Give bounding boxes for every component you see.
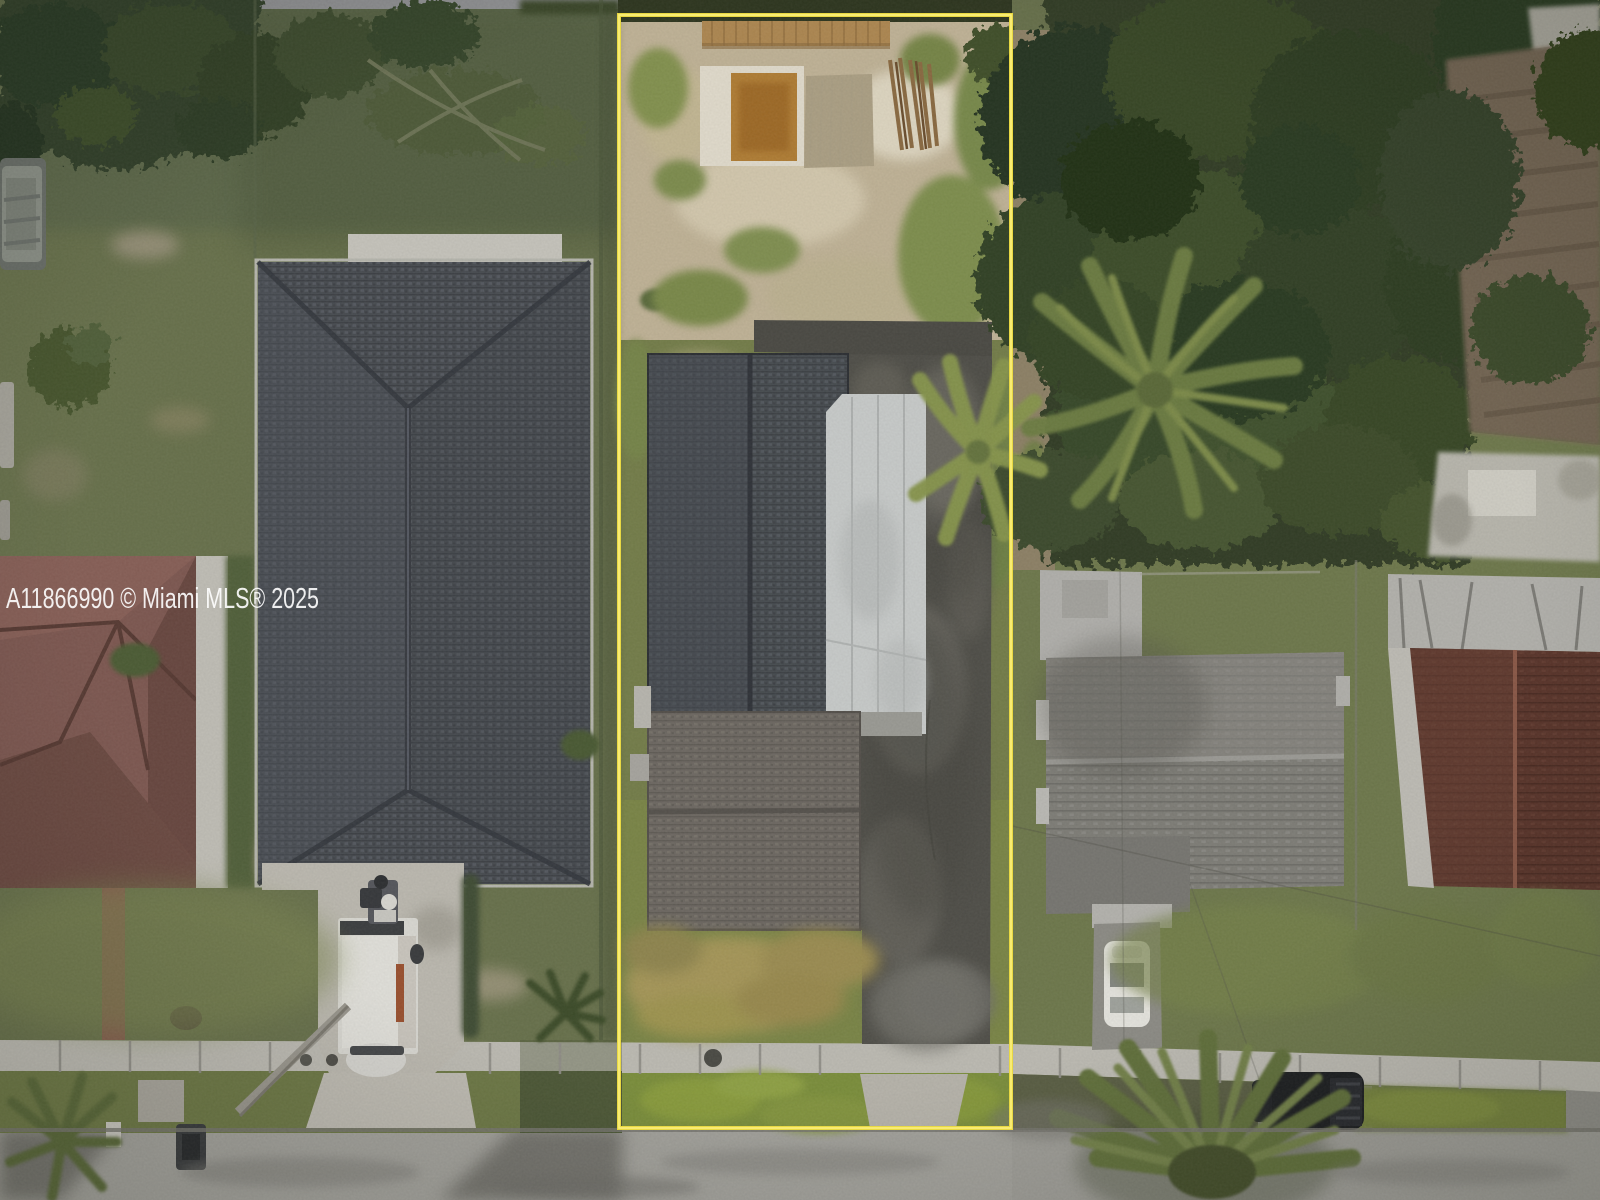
svg-text:A11866990 © Miami MLS® 2025: A11866990 © Miami MLS® 2025 bbox=[6, 583, 319, 615]
